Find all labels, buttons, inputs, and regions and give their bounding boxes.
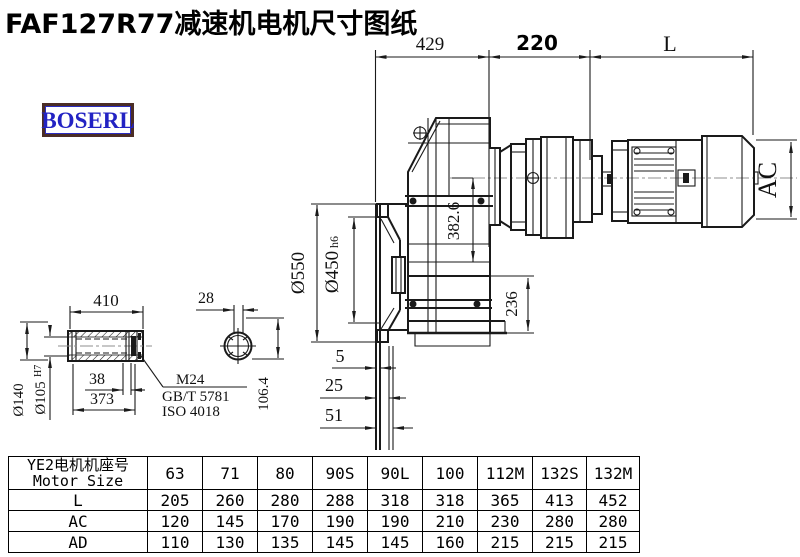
- cell: 145: [368, 532, 423, 553]
- cell: 210: [423, 511, 478, 532]
- dim-220: 220: [516, 31, 558, 55]
- size-col: 80: [258, 457, 313, 490]
- cell: 280: [587, 511, 640, 532]
- dim-410: 410: [93, 291, 119, 310]
- cell: 413: [533, 490, 587, 511]
- dim-373: 373: [90, 391, 114, 408]
- label-screw: M24: [176, 372, 205, 388]
- dim-105: Ø105: [33, 381, 49, 414]
- cell: 215: [533, 532, 587, 553]
- motor-size-table: YE2电机机座号 Motor Size 63 71 80 90S 90L 100…: [8, 456, 640, 553]
- cell: 190: [368, 511, 423, 532]
- table-row: AD 110 130 135 145 145 160 215 215 215: [9, 532, 640, 553]
- input-adapter-drawing: [495, 137, 612, 238]
- dim-450: Ø450: [322, 251, 343, 293]
- header-en: Motor Size: [9, 473, 147, 489]
- dim-236: 236: [502, 291, 521, 317]
- table-row: AC 120 145 170 190 190 210 230 280 280: [9, 511, 640, 532]
- dim-25: 25: [325, 375, 343, 395]
- dim-429: 429: [416, 34, 445, 55]
- cell: 318: [423, 490, 478, 511]
- label-screw-std2: ISO 4018: [162, 404, 220, 420]
- dim-AC-group: AC: [753, 140, 797, 219]
- dim-28: 28: [198, 290, 214, 307]
- cell: 318: [368, 490, 423, 511]
- cell: 145: [313, 532, 368, 553]
- cell: 215: [478, 532, 533, 553]
- size-col: 132M: [587, 457, 640, 490]
- cell: 160: [423, 532, 478, 553]
- size-col: 100: [423, 457, 478, 490]
- row-label: AC: [9, 511, 148, 532]
- table-corner-cell: YE2电机机座号 Motor Size: [9, 457, 148, 490]
- flange-drawing: [376, 204, 408, 450]
- cell: 135: [258, 532, 313, 553]
- dim-450-tol: h6: [327, 236, 341, 248]
- dim-106: 106.4: [256, 377, 272, 411]
- cell: 280: [258, 490, 313, 511]
- size-col: 71: [203, 457, 258, 490]
- dim-382: 382.6: [444, 202, 463, 240]
- cell: 110: [148, 532, 203, 553]
- dim-AC: AC: [753, 162, 782, 198]
- cell: 190: [313, 511, 368, 532]
- size-col: 90L: [368, 457, 423, 490]
- row-label: AD: [9, 532, 148, 553]
- dim-38: 38: [89, 371, 105, 388]
- dim-105-tol: H7: [33, 365, 44, 377]
- cell: 288: [313, 490, 368, 511]
- dim-L: L: [663, 31, 676, 56]
- dim-flange-group: Ø550 Ø450 h6: [288, 204, 388, 342]
- header-cn: YE2电机机座号: [9, 457, 147, 473]
- size-col: 90S: [313, 457, 368, 490]
- dim-236-group: 236: [490, 276, 534, 333]
- size-col: 112M: [478, 457, 533, 490]
- size-col: 63: [148, 457, 203, 490]
- dim-51: 51: [325, 405, 343, 425]
- dim-382-group: 382.6: [444, 178, 473, 262]
- cell: 130: [203, 532, 258, 553]
- cell: 452: [587, 490, 640, 511]
- cell: 120: [148, 511, 203, 532]
- row-label: L: [9, 490, 148, 511]
- cell: 215: [587, 532, 640, 553]
- cell: 205: [148, 490, 203, 511]
- cell: 145: [203, 511, 258, 532]
- page: FAF127R77减速机电机尺寸图纸 BOSERL 429 220 L: [0, 0, 800, 557]
- table-header-row: YE2电机机座号 Motor Size 63 71 80 90S 90L 100…: [9, 457, 640, 490]
- dim-140: Ø140: [11, 383, 27, 416]
- cell: 280: [533, 511, 587, 532]
- cell: 230: [478, 511, 533, 532]
- motor-drawing: [612, 136, 758, 227]
- cell: 170: [258, 511, 313, 532]
- dim-5: 5: [336, 346, 345, 366]
- size-col: 132S: [533, 457, 587, 490]
- cell: 365: [478, 490, 533, 511]
- cell: 260: [203, 490, 258, 511]
- dim-foot-offsets: 5 25 51: [320, 346, 413, 428]
- dim-550: Ø550: [288, 252, 309, 294]
- table-row: L 205 260 280 288 318 318 365 413 452: [9, 490, 640, 511]
- label-screw-std1: GB/T 5781: [162, 389, 230, 405]
